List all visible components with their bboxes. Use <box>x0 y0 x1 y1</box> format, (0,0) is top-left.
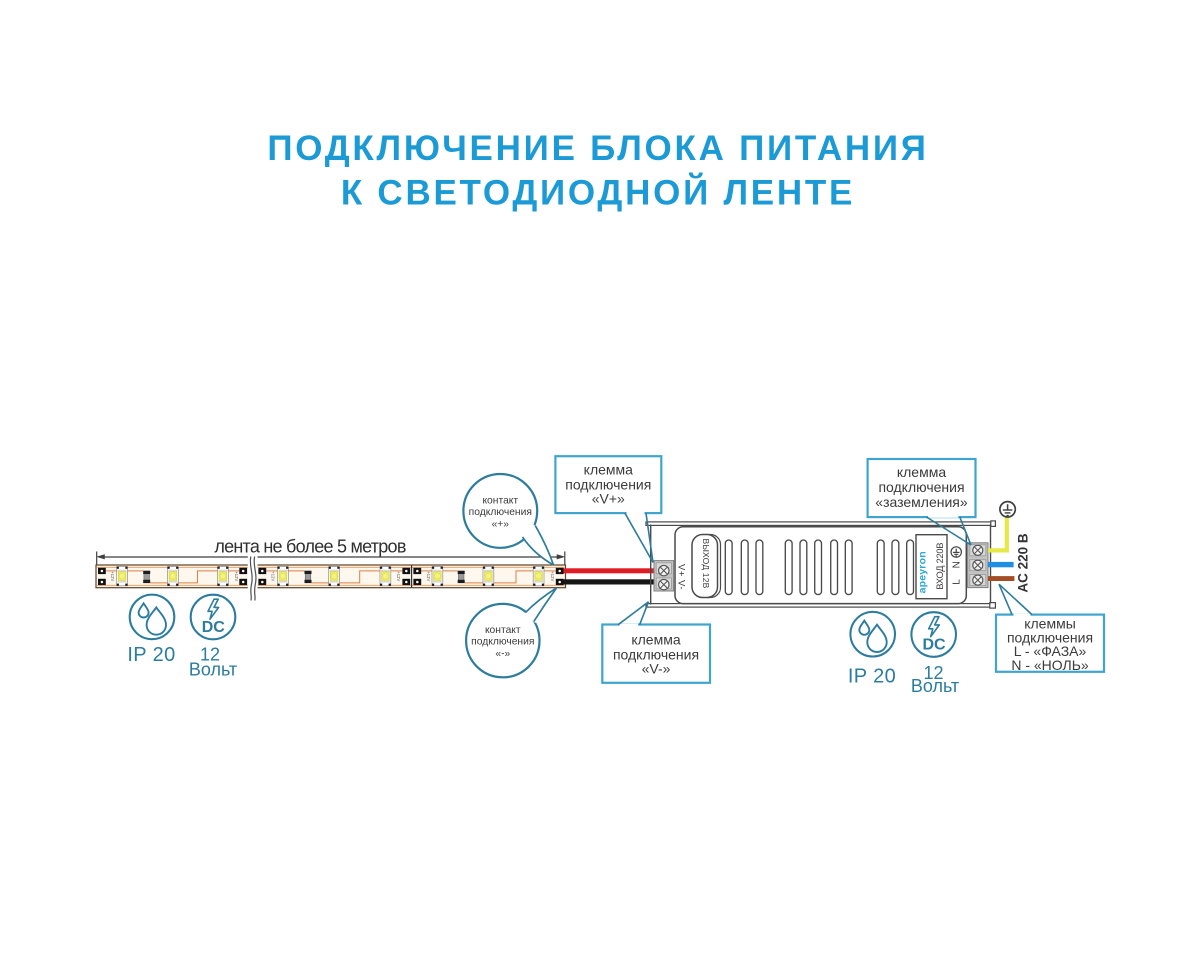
svg-text:N: N <box>952 561 963 568</box>
svg-text:«V+»: «V+» <box>592 491 625 507</box>
svg-text:«+»: «+» <box>492 519 510 530</box>
svg-text:+12V: +12V <box>110 571 115 581</box>
svg-text:«V-»: «V-» <box>642 661 671 677</box>
svg-text:контакт: контакт <box>485 625 521 636</box>
svg-text:+12V: +12V <box>270 571 275 581</box>
svg-text:L: L <box>952 579 963 585</box>
svg-text:лента не более 5 метров: лента не более 5 метров <box>214 537 405 557</box>
svg-text:Вольт: Вольт <box>911 676 959 696</box>
svg-text:Вольт: Вольт <box>189 660 237 680</box>
svg-text:apeyron: apeyron <box>916 551 928 593</box>
svg-text:«заземления»: «заземления» <box>875 494 968 510</box>
svg-text:клемма: клемма <box>897 464 946 480</box>
svg-text:DC: DC <box>202 619 226 636</box>
svg-text:ПОДКЛЮЧЕНИЕ БЛОКА ПИТАНИЯ: ПОДКЛЮЧЕНИЕ БЛОКА ПИТАНИЯ <box>267 129 928 168</box>
svg-text:ВЫХОД 12В: ВЫХОД 12В <box>701 538 711 588</box>
svg-text:IP 20: IP 20 <box>848 666 896 688</box>
svg-text:клемма: клемма <box>631 632 680 648</box>
svg-text:контакт: контакт <box>482 496 518 507</box>
svg-text:IP 20: IP 20 <box>127 644 175 666</box>
svg-text:подключения: подключения <box>469 507 532 518</box>
svg-text:клемма: клемма <box>584 462 633 478</box>
svg-text:N - «НОЛЬ»: N - «НОЛЬ» <box>1011 657 1089 673</box>
svg-text:+12V: +12V <box>426 571 431 581</box>
svg-text:+12V: +12V <box>396 571 401 581</box>
svg-text:ВХОД 220В: ВХОД 220В <box>935 543 945 590</box>
svg-text:подключения: подключения <box>471 636 534 647</box>
svg-text:DC: DC <box>922 636 946 653</box>
svg-text:+12V: +12V <box>234 571 239 581</box>
svg-text:V+ V-: V+ V- <box>676 564 687 590</box>
svg-text:AC 220 В: AC 220 В <box>1015 533 1030 593</box>
svg-text:«-»: «-» <box>495 649 510 660</box>
svg-text:+12V: +12V <box>550 571 555 581</box>
svg-text:К СВЕТОДИОДНОЙ ЛЕНТЕ: К СВЕТОДИОДНОЙ ЛЕНТЕ <box>341 173 855 213</box>
svg-text:подключения: подключения <box>878 479 964 495</box>
